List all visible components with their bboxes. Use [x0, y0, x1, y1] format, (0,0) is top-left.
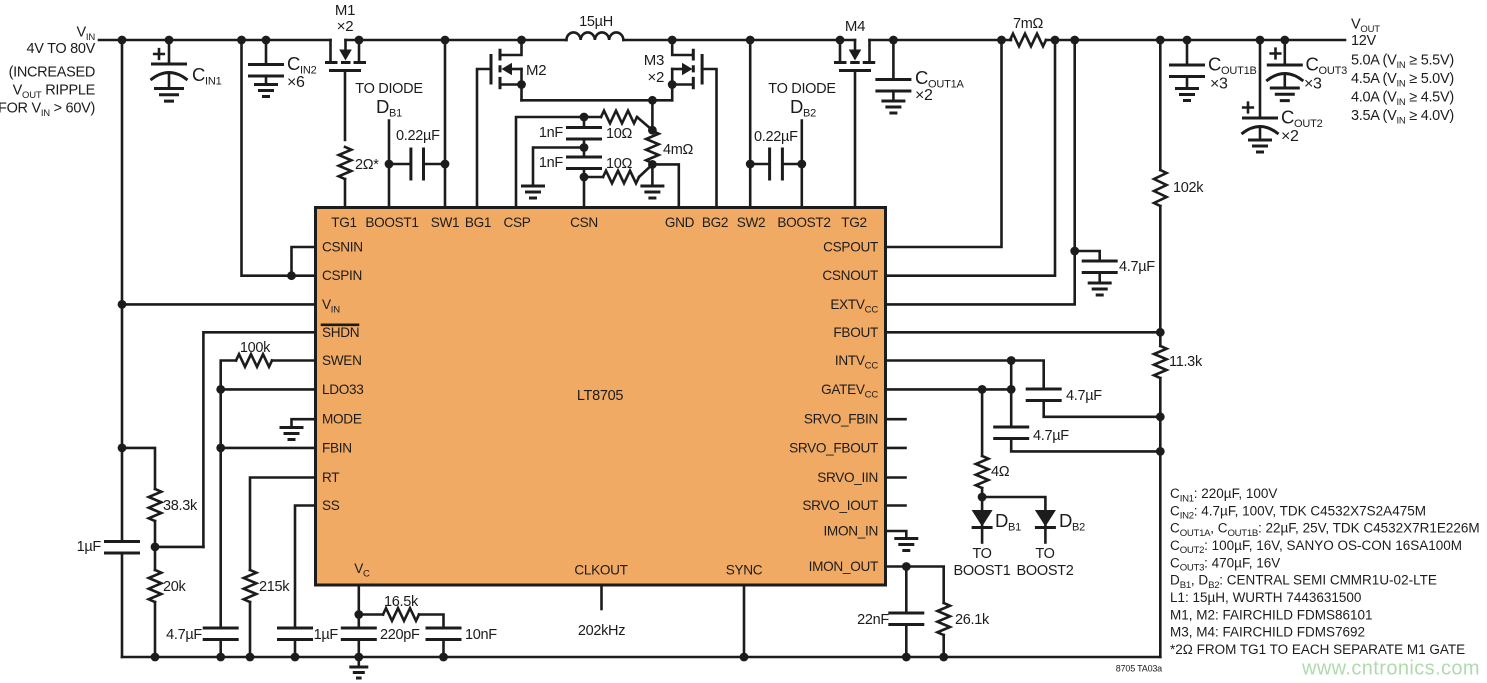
svg-text:4.7µF: 4.7µF: [1033, 428, 1069, 444]
svg-text:BOOST1: BOOST1: [953, 563, 1010, 579]
svg-text:BOOST1: BOOST1: [365, 215, 418, 230]
svg-text:LDO33: LDO33: [322, 382, 364, 397]
svg-text:www.cntronics.com: www.cntronics.com: [1301, 658, 1480, 680]
svg-text:10nF: 10nF: [465, 627, 497, 643]
svg-text:TO DIODE: TO DIODE: [768, 81, 836, 97]
svg-text:SYNC: SYNC: [726, 563, 763, 578]
svg-text:(INCREASED: (INCREASED: [9, 65, 95, 81]
svg-text:2Ω*: 2Ω*: [355, 157, 379, 173]
svg-text:202kHz: 202kHz: [578, 623, 625, 639]
svg-text:16.5k: 16.5k: [384, 594, 419, 610]
svg-text:BG1: BG1: [465, 215, 491, 230]
svg-text:1µF: 1µF: [314, 627, 339, 643]
svg-text:TG2: TG2: [841, 215, 867, 230]
svg-text:×3: ×3: [1304, 76, 1322, 93]
svg-text:8705 TA03a: 8705 TA03a: [1116, 664, 1162, 674]
svg-text:1µF: 1µF: [77, 539, 102, 555]
svg-text:15µH: 15µH: [579, 14, 613, 30]
svg-text:FBOUT: FBOUT: [833, 325, 878, 340]
svg-text:FBIN: FBIN: [322, 440, 352, 455]
svg-text:SRVO_IOUT: SRVO_IOUT: [802, 498, 878, 513]
svg-text:CSPOUT: CSPOUT: [823, 240, 878, 255]
svg-text:22nF: 22nF: [857, 612, 889, 628]
svg-text:M3: M3: [644, 52, 664, 69]
svg-text:20k: 20k: [163, 579, 187, 595]
svg-text:CSN: CSN: [570, 215, 598, 230]
svg-text:*2Ω FROM TG1 TO EACH SEPARATE: *2Ω FROM TG1 TO EACH SEPARATE M1 GATE: [1170, 642, 1465, 657]
svg-text:M1: M1: [335, 2, 355, 19]
svg-text:TG1: TG1: [331, 215, 357, 230]
svg-text:RT: RT: [322, 470, 339, 485]
svg-text:26.1k: 26.1k: [955, 612, 990, 628]
svg-text:10Ω: 10Ω: [606, 156, 633, 172]
svg-text:4.7µF: 4.7µF: [166, 627, 202, 643]
svg-text:SRVO_IIN: SRVO_IIN: [817, 470, 878, 485]
svg-text:×2: ×2: [337, 18, 354, 35]
svg-text:1nF: 1nF: [539, 155, 564, 171]
svg-text:×2: ×2: [1281, 128, 1299, 145]
svg-text:102k: 102k: [1173, 180, 1204, 196]
svg-text:CSNIN: CSNIN: [322, 240, 363, 255]
svg-text:CSPIN: CSPIN: [322, 268, 362, 283]
svg-text:M2: M2: [526, 62, 546, 79]
svg-text:4mΩ: 4mΩ: [663, 142, 694, 158]
svg-text:TO: TO: [972, 546, 991, 562]
svg-text:4V TO 80V: 4V TO 80V: [26, 41, 95, 57]
svg-text:BOOST2: BOOST2: [777, 215, 830, 230]
svg-text:L1: 15µH, WURTH 7443631500: L1: 15µH, WURTH 7443631500: [1170, 590, 1361, 605]
svg-text:215k: 215k: [259, 579, 290, 595]
svg-text:100k: 100k: [240, 340, 271, 356]
svg-text:M3, M4: FAIRCHILD FDMS7692: M3, M4: FAIRCHILD FDMS7692: [1170, 625, 1365, 640]
svg-text:0.22µF: 0.22µF: [396, 128, 440, 144]
svg-text:SW1: SW1: [431, 215, 460, 230]
svg-text:220pF: 220pF: [380, 627, 420, 643]
svg-text:4Ω: 4Ω: [991, 464, 1010, 480]
svg-text:SS: SS: [322, 498, 340, 513]
svg-text:1nF: 1nF: [539, 125, 564, 141]
svg-text:CLKOUT: CLKOUT: [574, 563, 627, 578]
svg-text:SRVO_FBIN: SRVO_FBIN: [804, 412, 878, 427]
svg-text:BOOST2: BOOST2: [1016, 563, 1073, 579]
svg-text:4.7µF: 4.7µF: [1066, 388, 1102, 404]
svg-text:SW2: SW2: [737, 215, 766, 230]
svg-text:7mΩ: 7mΩ: [1013, 16, 1044, 32]
svg-text:11.3k: 11.3k: [1169, 354, 1203, 370]
svg-text:GND: GND: [665, 215, 695, 230]
svg-text:×6: ×6: [287, 74, 305, 91]
svg-text:10Ω: 10Ω: [606, 126, 633, 142]
svg-text:LT8705: LT8705: [577, 388, 624, 404]
svg-text:CSP: CSP: [503, 215, 530, 230]
svg-text:SWEN: SWEN: [322, 353, 362, 368]
svg-text:4.7µF: 4.7µF: [1119, 259, 1155, 275]
svg-text:SRVO_FBOUT: SRVO_FBOUT: [789, 440, 878, 455]
svg-text:IMON_IN: IMON_IN: [823, 524, 878, 539]
svg-text:×2: ×2: [915, 87, 933, 104]
svg-text:×3: ×3: [1210, 76, 1228, 93]
svg-text:BG2: BG2: [702, 215, 728, 230]
svg-text:12V: 12V: [1351, 33, 1377, 49]
svg-text:CSNOUT: CSNOUT: [822, 268, 878, 283]
svg-text:TO DIODE: TO DIODE: [355, 81, 423, 97]
svg-text:0.22µF: 0.22µF: [754, 129, 798, 145]
svg-text:38.3k: 38.3k: [163, 498, 198, 514]
svg-text:MODE: MODE: [322, 412, 362, 427]
svg-text:IMON_OUT: IMON_OUT: [809, 559, 878, 574]
svg-text:TO: TO: [1035, 546, 1054, 562]
svg-text:×2: ×2: [647, 69, 664, 86]
svg-text:M4: M4: [845, 18, 865, 35]
svg-text:M1, M2: FAIRCHILD FDMS86101: M1, M2: FAIRCHILD FDMS86101: [1170, 607, 1373, 622]
svg-text:SHDN: SHDN: [322, 325, 359, 340]
